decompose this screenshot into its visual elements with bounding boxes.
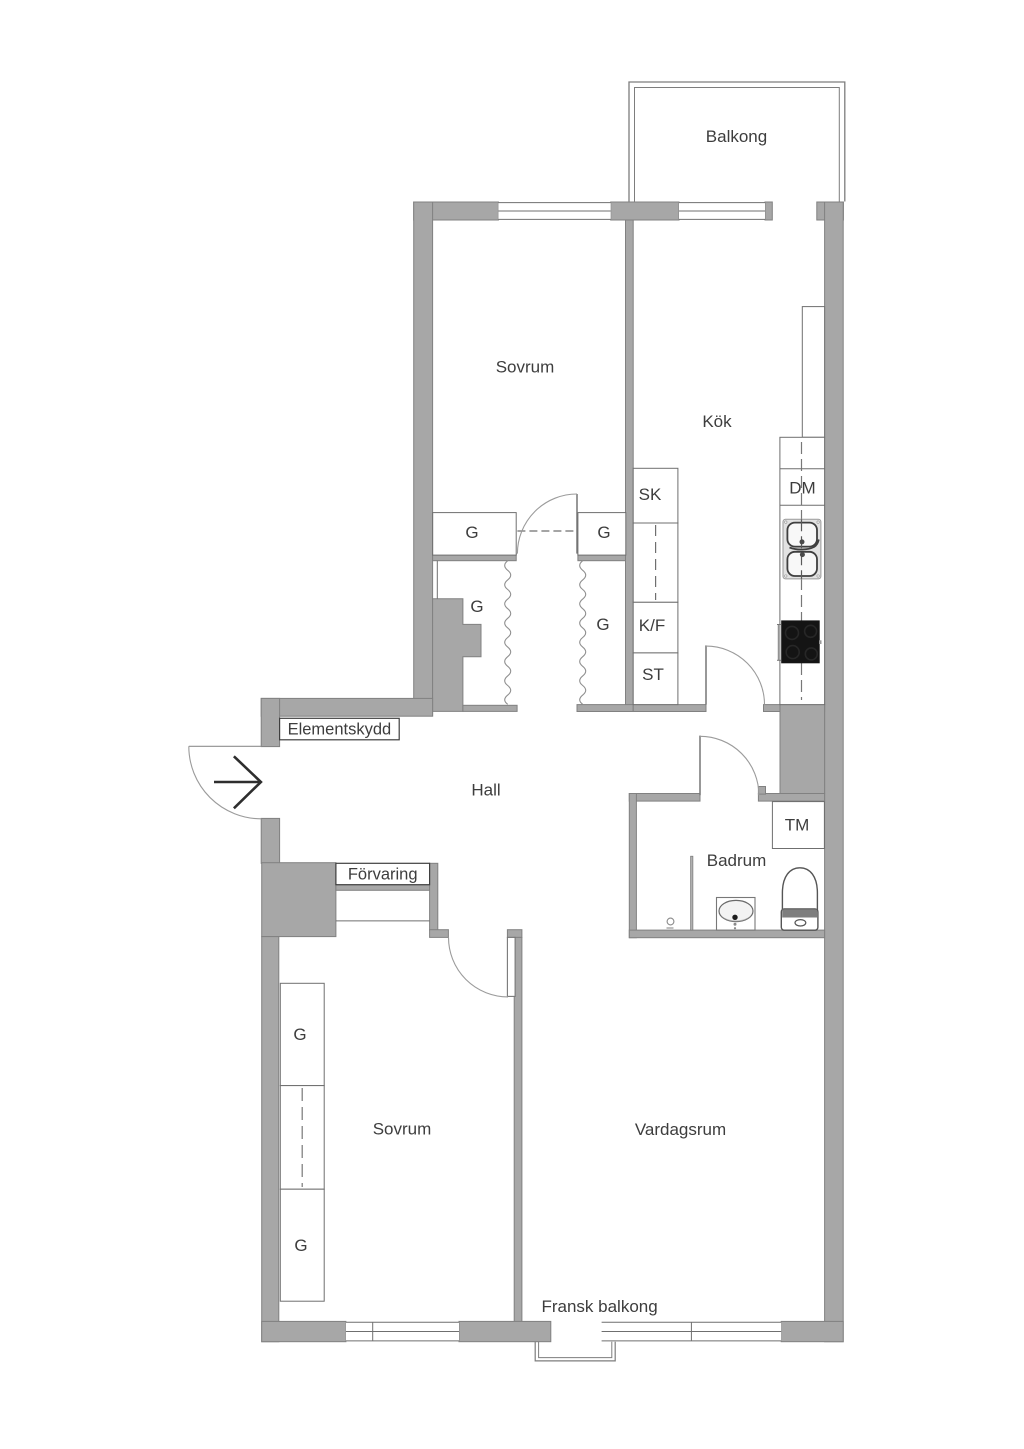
svg-text:Elementskydd: Elementskydd xyxy=(288,721,392,739)
svg-text:G: G xyxy=(596,615,609,634)
svg-text:DM: DM xyxy=(789,479,815,498)
svg-text:G: G xyxy=(465,523,478,542)
svg-text:Balkong: Balkong xyxy=(706,127,767,146)
svg-text:SK: SK xyxy=(639,485,662,504)
svg-text:Förvaring: Förvaring xyxy=(348,866,418,884)
svg-text:Sovrum: Sovrum xyxy=(373,1120,432,1139)
svg-text:Fransk balkong: Fransk balkong xyxy=(541,1297,657,1316)
svg-text:G: G xyxy=(294,1236,307,1255)
svg-text:Hall: Hall xyxy=(471,781,500,800)
svg-text:G: G xyxy=(293,1025,306,1044)
svg-text:Sovrum: Sovrum xyxy=(496,358,555,377)
svg-text:G: G xyxy=(597,523,610,542)
svg-text:TM: TM xyxy=(785,816,810,835)
svg-text:K/F: K/F xyxy=(639,616,665,635)
svg-text:Badrum: Badrum xyxy=(707,851,767,870)
svg-text:G: G xyxy=(470,597,483,616)
svg-text:ST: ST xyxy=(642,665,664,684)
svg-text:Kök: Kök xyxy=(702,412,732,431)
svg-text:Vardagsrum: Vardagsrum xyxy=(635,1120,726,1139)
